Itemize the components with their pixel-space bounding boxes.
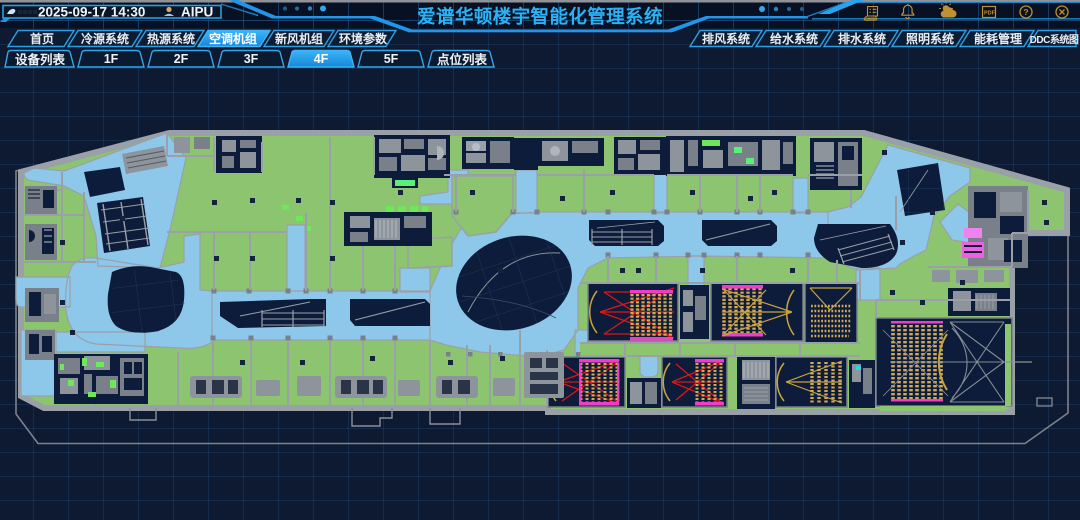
svg-text:PDF: PDF — [984, 11, 996, 17]
svg-text:AIPU: AIPU — [181, 5, 213, 20]
svg-text:爱谱华顿楼宇智能化管理系统: 爱谱华顿楼宇智能化管理系统 — [417, 6, 663, 27]
svg-text:2025-09-17 14:30: 2025-09-17 14:30 — [38, 5, 145, 20]
svg-text:?: ? — [1023, 7, 1028, 17]
